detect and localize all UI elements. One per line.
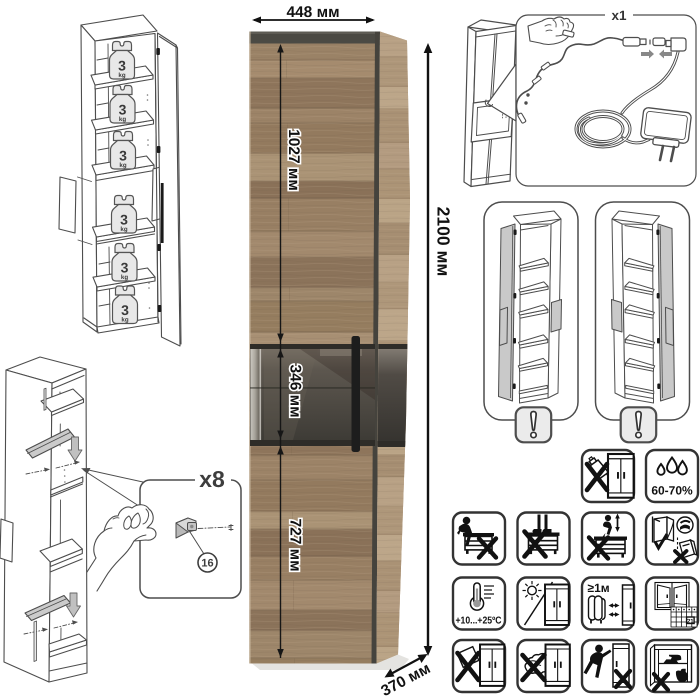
svg-text:21: 21 [687,618,694,625]
svg-text:≥1м: ≥1м [588,581,610,595]
svg-text:1027 мм: 1027 мм [285,129,302,191]
svg-text:16: 16 [201,558,213,570]
svg-text:346 мм: 346 мм [287,364,304,417]
svg-text:2100 мм: 2100 мм [434,207,454,277]
svg-text:x1: x1 [611,8,627,23]
svg-text:x8: x8 [199,466,225,492]
svg-text:727 мм: 727 мм [287,518,304,571]
svg-text:+10...+25ºC: +10...+25ºC [456,616,502,627]
svg-text:448 мм: 448 мм [286,4,339,21]
svg-text:60-70%: 60-70% [651,484,693,498]
